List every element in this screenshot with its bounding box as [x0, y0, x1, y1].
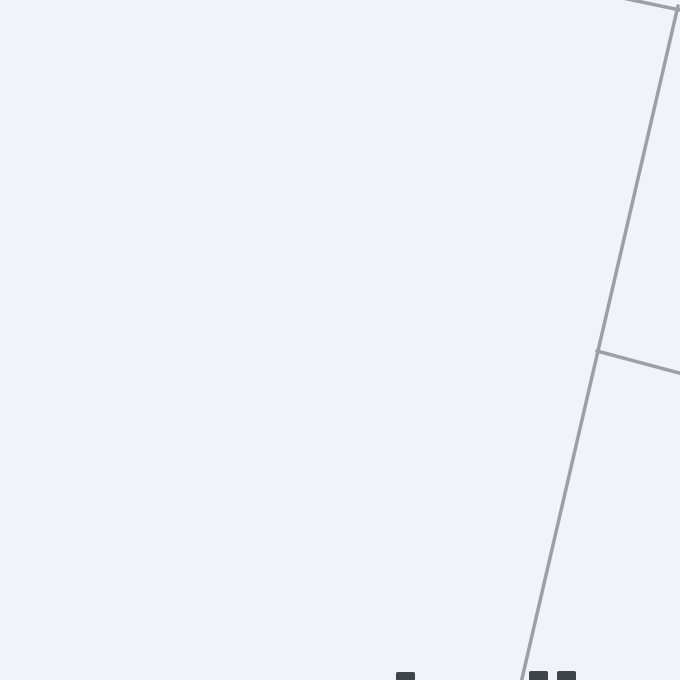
map-label-glyph-fragment	[529, 671, 548, 680]
top-right-corner-road	[613, 0, 680, 10]
map-canvas[interactable]	[0, 0, 680, 680]
map-viewport[interactable]	[0, 0, 680, 680]
map-label-glyph-fragment	[557, 671, 576, 680]
main-diagonal-road	[521, 6, 678, 680]
right-branch-road	[597, 351, 680, 374]
map-label-glyph-fragment	[396, 672, 415, 680]
